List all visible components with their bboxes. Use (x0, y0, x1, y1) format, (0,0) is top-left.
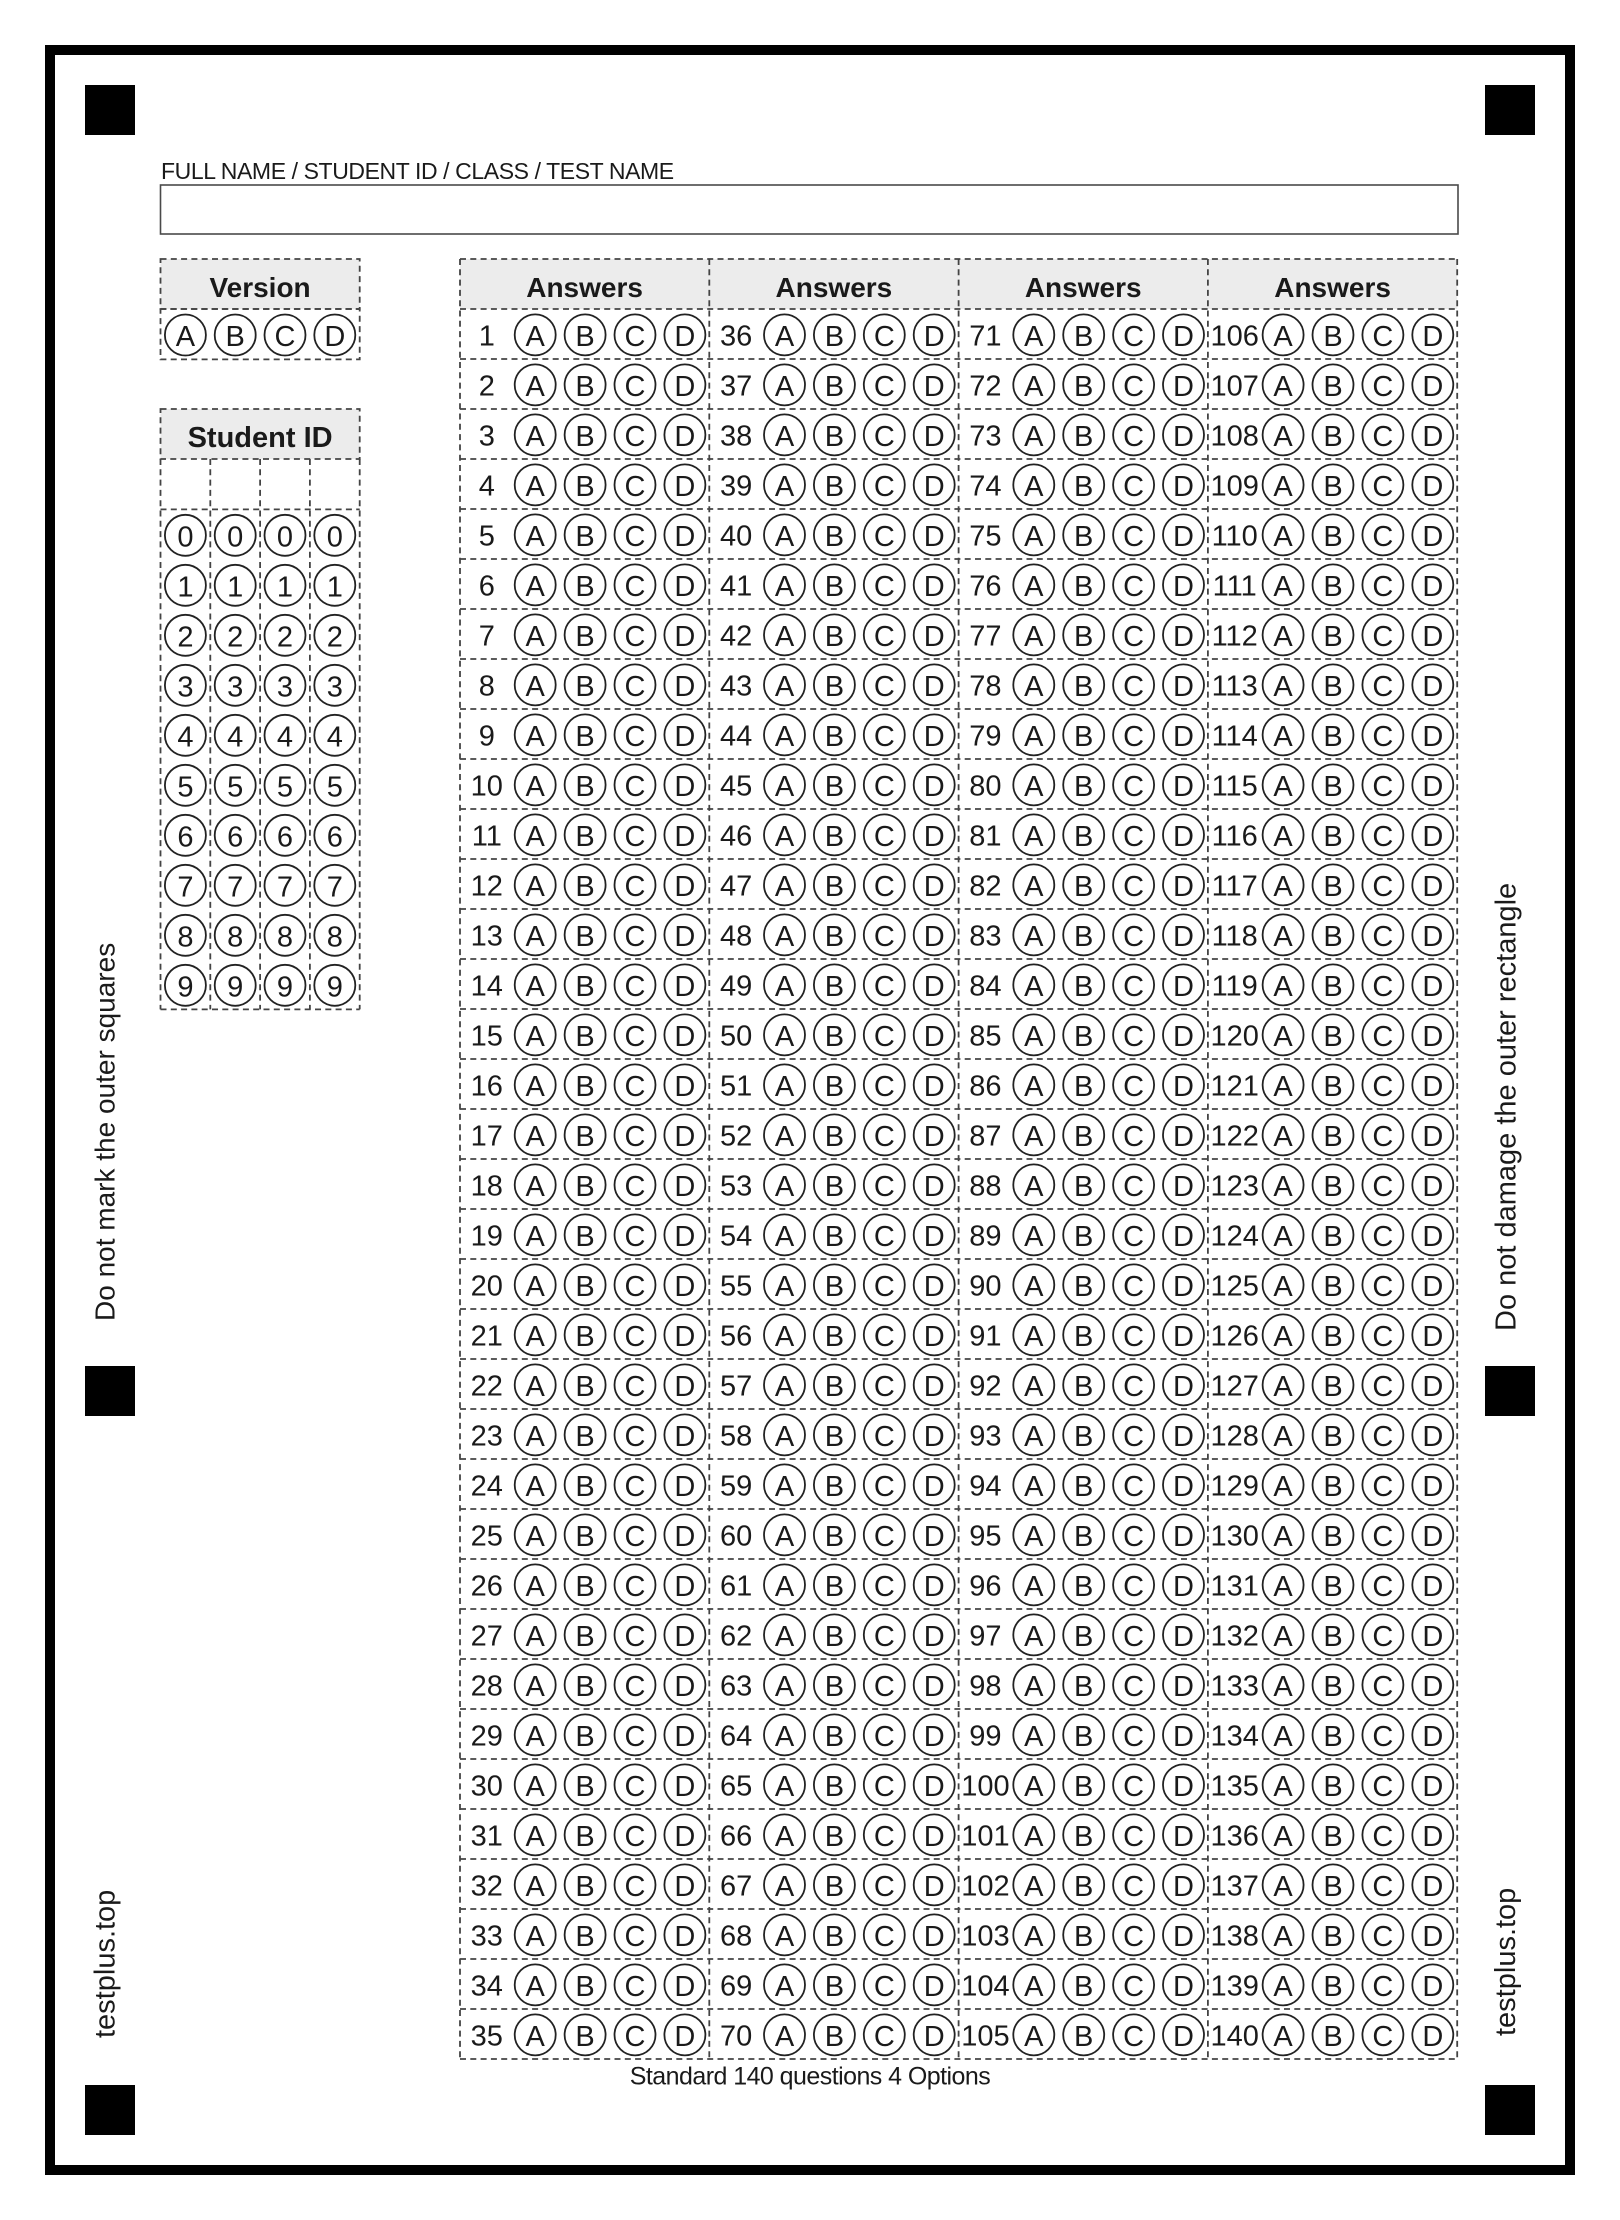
svg-text:C: C (625, 1371, 646, 1403)
svg-text:C: C (874, 1371, 895, 1403)
svg-text:A: A (526, 1621, 546, 1653)
svg-text:123: 123 (1211, 1171, 1259, 1203)
svg-text:A: A (775, 1021, 795, 1053)
svg-text:79: 79 (969, 721, 1001, 753)
svg-text:C: C (874, 1571, 895, 1603)
svg-text:A: A (1273, 1421, 1293, 1453)
svg-text:B: B (575, 1021, 594, 1053)
svg-text:A: A (526, 571, 546, 603)
svg-text:B: B (1074, 1821, 1093, 1853)
svg-text:B: B (825, 2021, 844, 2053)
svg-text:B: B (1323, 771, 1342, 803)
svg-text:A: A (1273, 1971, 1293, 2003)
svg-text:B: B (1323, 321, 1342, 353)
svg-text:D: D (674, 1921, 695, 1953)
svg-text:D: D (924, 1221, 945, 1253)
svg-text:D: D (1173, 371, 1194, 403)
svg-text:A: A (775, 1371, 795, 1403)
svg-text:D: D (1422, 1371, 1443, 1403)
svg-text:A: A (1273, 671, 1293, 703)
svg-text:C: C (1123, 1171, 1144, 1203)
svg-text:D: D (924, 1021, 945, 1053)
svg-text:B: B (825, 771, 844, 803)
svg-text:A: A (1024, 621, 1044, 653)
svg-text:A: A (1273, 2021, 1293, 2053)
svg-text:C: C (874, 421, 895, 453)
svg-text:43: 43 (720, 671, 752, 703)
svg-text:C: C (1123, 1971, 1144, 2003)
svg-text:7: 7 (277, 872, 293, 904)
svg-text:Answers: Answers (1274, 272, 1391, 303)
svg-text:C: C (1372, 1571, 1393, 1603)
svg-text:D: D (1173, 1771, 1194, 1803)
svg-text:4: 4 (277, 722, 293, 754)
svg-text:C: C (1372, 371, 1393, 403)
svg-text:B: B (825, 471, 844, 503)
svg-text:D: D (924, 521, 945, 553)
svg-text:51: 51 (720, 1071, 752, 1103)
svg-text:2: 2 (479, 371, 495, 403)
svg-text:B: B (575, 871, 594, 903)
svg-text:9: 9 (479, 721, 495, 753)
svg-text:B: B (575, 1921, 594, 1953)
svg-text:C: C (1123, 471, 1144, 503)
svg-text:115: 115 (1212, 771, 1258, 803)
svg-text:D: D (1173, 1271, 1194, 1303)
svg-text:A: A (1024, 1721, 1044, 1753)
svg-text:C: C (1372, 721, 1393, 753)
svg-text:B: B (1323, 1321, 1342, 1353)
svg-text:D: D (924, 1821, 945, 1853)
svg-text:A: A (526, 1971, 546, 2003)
svg-text:D: D (674, 571, 695, 603)
svg-text:A: A (1024, 1321, 1044, 1353)
svg-text:B: B (575, 321, 594, 353)
svg-text:A: A (775, 1271, 795, 1303)
svg-text:D: D (1173, 1621, 1194, 1653)
svg-text:A: A (1024, 321, 1044, 353)
svg-text:1: 1 (327, 572, 343, 604)
svg-text:A: A (526, 821, 546, 853)
svg-text:B: B (575, 471, 594, 503)
svg-text:C: C (874, 1821, 895, 1853)
svg-text:135: 135 (1211, 1771, 1259, 1803)
svg-text:A: A (1024, 1271, 1044, 1303)
svg-text:C: C (625, 671, 646, 703)
svg-text:A: A (526, 871, 546, 903)
svg-text:D: D (1173, 521, 1194, 553)
svg-text:D: D (924, 1921, 945, 1953)
svg-text:D: D (1422, 871, 1443, 903)
svg-text:A: A (1273, 1721, 1293, 1753)
svg-text:B: B (1074, 471, 1093, 503)
svg-text:A: A (1024, 1971, 1044, 2003)
svg-text:Do not mark the outer squares: Do not mark the outer squares (90, 943, 121, 1321)
svg-text:B: B (575, 621, 594, 653)
svg-text:C: C (1123, 1121, 1144, 1153)
svg-text:4: 4 (227, 722, 243, 754)
svg-text:C: C (1123, 371, 1144, 403)
svg-text:0: 0 (277, 522, 293, 554)
svg-text:D: D (1173, 871, 1194, 903)
svg-text:C: C (874, 471, 895, 503)
svg-text:A: A (1024, 1421, 1044, 1453)
svg-text:A: A (775, 1971, 795, 2003)
svg-text:C: C (1123, 1921, 1144, 1953)
svg-text:C: C (874, 1871, 895, 1903)
svg-text:B: B (1323, 721, 1342, 753)
svg-text:C: C (625, 821, 646, 853)
svg-text:D: D (1173, 571, 1194, 603)
svg-text:D: D (1173, 1021, 1194, 1053)
svg-text:Answers: Answers (776, 272, 893, 303)
svg-text:A: A (775, 1571, 795, 1603)
svg-text:B: B (575, 1871, 594, 1903)
svg-text:C: C (1372, 1071, 1393, 1103)
svg-text:B: B (575, 721, 594, 753)
svg-text:A: A (526, 671, 546, 703)
svg-text:B: B (1323, 671, 1342, 703)
svg-text:C: C (1123, 971, 1144, 1003)
svg-text:D: D (674, 921, 695, 953)
svg-text:D: D (1173, 1671, 1194, 1703)
svg-text:B: B (1323, 471, 1342, 503)
svg-text:57: 57 (720, 1371, 752, 1403)
svg-text:A: A (775, 921, 795, 953)
svg-text:D: D (1173, 1421, 1194, 1453)
svg-text:D: D (924, 771, 945, 803)
svg-text:29: 29 (471, 1721, 503, 1753)
svg-text:C: C (1123, 1321, 1144, 1353)
svg-text:B: B (1323, 971, 1342, 1003)
svg-text:B: B (1323, 1921, 1342, 1953)
svg-text:B: B (825, 571, 844, 603)
svg-text:A: A (1024, 571, 1044, 603)
svg-text:A: A (775, 371, 795, 403)
svg-text:34: 34 (471, 1971, 503, 2003)
svg-text:A: A (526, 2021, 546, 2053)
svg-text:D: D (1173, 1371, 1194, 1403)
svg-text:B: B (1323, 1471, 1342, 1503)
svg-text:C: C (874, 621, 895, 653)
svg-text:A: A (1273, 1271, 1293, 1303)
svg-text:D: D (924, 1671, 945, 1703)
svg-text:B: B (575, 821, 594, 853)
svg-text:D: D (924, 821, 945, 853)
svg-text:C: C (625, 1521, 646, 1553)
svg-text:B: B (825, 1421, 844, 1453)
svg-text:11: 11 (472, 821, 502, 853)
svg-text:B: B (1323, 1221, 1342, 1253)
svg-text:D: D (674, 2021, 695, 2053)
svg-text:7: 7 (327, 872, 343, 904)
svg-text:A: A (1024, 1071, 1044, 1103)
svg-text:A: A (1024, 1571, 1044, 1603)
svg-text:A: A (526, 1071, 546, 1103)
svg-text:A: A (1273, 1771, 1293, 1803)
svg-text:140: 140 (1211, 2021, 1259, 2053)
svg-text:C: C (625, 1271, 646, 1303)
svg-text:C: C (625, 1221, 646, 1253)
svg-text:C: C (874, 1971, 895, 2003)
svg-text:77: 77 (969, 621, 1001, 653)
svg-text:A: A (1273, 1571, 1293, 1603)
svg-text:D: D (924, 1121, 945, 1153)
svg-text:C: C (1123, 521, 1144, 553)
svg-text:B: B (575, 371, 594, 403)
svg-text:A: A (526, 1321, 546, 1353)
svg-text:D: D (674, 421, 695, 453)
svg-text:D: D (1173, 1921, 1194, 1953)
svg-text:99: 99 (969, 1721, 1001, 1753)
svg-text:C: C (625, 521, 646, 553)
svg-text:A: A (1024, 1821, 1044, 1853)
svg-text:108: 108 (1211, 421, 1259, 453)
svg-text:C: C (1372, 821, 1393, 853)
svg-text:C: C (1123, 1221, 1144, 1253)
svg-text:A: A (1024, 1171, 1044, 1203)
svg-text:D: D (674, 1021, 695, 1053)
svg-text:B: B (575, 1721, 594, 1753)
svg-text:B: B (1074, 1771, 1093, 1803)
svg-text:C: C (625, 1971, 646, 2003)
svg-text:A: A (526, 1171, 546, 1203)
svg-text:B: B (575, 971, 594, 1003)
svg-text:125: 125 (1211, 1271, 1259, 1303)
svg-text:FULL NAME / STUDENT ID / CLASS: FULL NAME / STUDENT ID / CLASS / TEST NA… (161, 158, 674, 184)
svg-text:1: 1 (227, 572, 243, 604)
svg-text:A: A (1024, 1021, 1044, 1053)
svg-text:C: C (1123, 621, 1144, 653)
svg-text:D: D (1173, 821, 1194, 853)
svg-text:121: 121 (1211, 1071, 1259, 1103)
svg-text:C: C (874, 1271, 895, 1303)
svg-text:B: B (1074, 1871, 1093, 1903)
svg-text:A: A (1024, 521, 1044, 553)
svg-text:D: D (1422, 1521, 1443, 1553)
svg-text:6: 6 (177, 822, 193, 854)
svg-text:C: C (1123, 1621, 1144, 1653)
svg-text:C: C (1123, 1721, 1144, 1753)
svg-text:B: B (1074, 1371, 1093, 1403)
svg-text:6: 6 (227, 822, 243, 854)
svg-text:24: 24 (471, 1471, 503, 1503)
svg-text:133: 133 (1211, 1671, 1259, 1703)
svg-text:Standard 140 questions 4 Optio: Standard 140 questions 4 Options (630, 2063, 990, 2091)
svg-text:109: 109 (1211, 471, 1259, 503)
svg-text:A: A (775, 471, 795, 503)
svg-text:19: 19 (471, 1221, 503, 1253)
svg-text:131: 131 (1211, 1571, 1259, 1603)
svg-text:C: C (625, 1871, 646, 1903)
svg-text:A: A (1273, 721, 1293, 753)
svg-text:C: C (625, 1821, 646, 1853)
svg-text:C: C (1123, 571, 1144, 603)
svg-text:A: A (1024, 1471, 1044, 1503)
svg-text:A: A (1024, 1121, 1044, 1153)
svg-text:B: B (1074, 1071, 1093, 1103)
svg-text:A: A (526, 1271, 546, 1303)
svg-text:A: A (1273, 1921, 1293, 1953)
svg-text:A: A (1024, 371, 1044, 403)
svg-text:D: D (674, 871, 695, 903)
svg-text:C: C (1372, 571, 1393, 603)
svg-text:D: D (924, 971, 945, 1003)
svg-text:7: 7 (227, 872, 243, 904)
svg-text:B: B (575, 1121, 594, 1153)
svg-text:A: A (775, 1171, 795, 1203)
svg-text:B: B (825, 1021, 844, 1053)
svg-text:D: D (1422, 321, 1443, 353)
svg-text:C: C (1372, 871, 1393, 903)
svg-text:A: A (1024, 1771, 1044, 1803)
svg-text:D: D (1422, 1321, 1443, 1353)
svg-text:A: A (1273, 521, 1293, 553)
svg-text:32: 32 (471, 1871, 503, 1903)
svg-text:B: B (575, 1171, 594, 1203)
svg-text:B: B (1074, 1571, 1093, 1603)
svg-text:A: A (1273, 1021, 1293, 1053)
svg-text:59: 59 (720, 1471, 752, 1503)
svg-text:A: A (1024, 721, 1044, 753)
svg-text:A: A (1024, 1621, 1044, 1653)
svg-text:C: C (874, 371, 895, 403)
svg-text:B: B (1074, 871, 1093, 903)
svg-text:A: A (775, 1721, 795, 1753)
svg-text:C: C (625, 421, 646, 453)
svg-text:D: D (1422, 821, 1443, 853)
svg-text:D: D (674, 1821, 695, 1853)
svg-text:A: A (1273, 421, 1293, 453)
svg-text:C: C (874, 1671, 895, 1703)
svg-text:B: B (1323, 1071, 1342, 1103)
svg-text:C: C (1372, 2021, 1393, 2053)
svg-text:A: A (526, 1871, 546, 1903)
svg-text:A: A (775, 1771, 795, 1803)
svg-text:B: B (825, 1321, 844, 1353)
svg-text:90: 90 (969, 1271, 1001, 1303)
svg-text:D: D (1422, 1421, 1443, 1453)
svg-text:D: D (1422, 1221, 1443, 1253)
svg-text:A: A (526, 421, 546, 453)
svg-text:10: 10 (471, 771, 503, 803)
svg-text:C: C (874, 821, 895, 853)
svg-text:78: 78 (969, 671, 1001, 703)
svg-text:C: C (1372, 1171, 1393, 1203)
svg-text:81: 81 (969, 821, 1001, 853)
svg-text:C: C (1372, 921, 1393, 953)
svg-text:A: A (775, 571, 795, 603)
svg-text:A: A (775, 1221, 795, 1253)
svg-text:C: C (625, 321, 646, 353)
svg-text:A: A (176, 321, 196, 353)
svg-text:B: B (575, 1371, 594, 1403)
svg-text:A: A (775, 871, 795, 903)
svg-text:82: 82 (969, 871, 1001, 903)
svg-text:D: D (1422, 1021, 1443, 1053)
svg-text:B: B (825, 1271, 844, 1303)
svg-text:B: B (1323, 1521, 1342, 1553)
svg-text:54: 54 (720, 1221, 752, 1253)
svg-text:C: C (625, 1121, 646, 1153)
svg-text:73: 73 (969, 421, 1001, 453)
svg-text:B: B (825, 371, 844, 403)
svg-text:D: D (1422, 1121, 1443, 1153)
svg-text:D: D (1173, 1221, 1194, 1253)
svg-text:A: A (775, 1321, 795, 1353)
svg-text:B: B (825, 1871, 844, 1903)
svg-text:B: B (575, 1421, 594, 1453)
svg-text:D: D (1422, 721, 1443, 753)
svg-text:D: D (924, 1321, 945, 1353)
svg-text:B: B (1323, 1821, 1342, 1853)
svg-text:B: B (825, 1171, 844, 1203)
svg-text:B: B (575, 1971, 594, 2003)
svg-text:56: 56 (720, 1321, 752, 1353)
svg-text:C: C (625, 771, 646, 803)
svg-text:B: B (1074, 2021, 1093, 2053)
svg-text:A: A (526, 1921, 546, 1953)
svg-text:B: B (575, 1821, 594, 1853)
svg-text:C: C (625, 971, 646, 1003)
svg-text:D: D (1173, 1471, 1194, 1503)
svg-text:102: 102 (961, 1871, 1009, 1903)
svg-text:7: 7 (177, 872, 193, 904)
svg-text:63: 63 (720, 1671, 752, 1703)
svg-text:27: 27 (471, 1621, 503, 1653)
svg-text:D: D (674, 1621, 695, 1653)
svg-text:B: B (825, 1821, 844, 1853)
svg-text:D: D (1173, 471, 1194, 503)
svg-text:A: A (526, 921, 546, 953)
svg-text:B: B (825, 521, 844, 553)
svg-text:D: D (1422, 971, 1443, 1003)
svg-text:B: B (575, 1321, 594, 1353)
svg-text:55: 55 (720, 1271, 752, 1303)
svg-text:C: C (1123, 1371, 1144, 1403)
svg-text:C: C (275, 321, 296, 353)
svg-text:134: 134 (1211, 1721, 1259, 1753)
svg-text:C: C (1123, 1871, 1144, 1903)
svg-text:B: B (1323, 2021, 1342, 2053)
svg-text:3: 3 (327, 672, 343, 704)
svg-text:A: A (775, 1421, 795, 1453)
svg-text:C: C (625, 471, 646, 503)
svg-text:22: 22 (471, 1371, 503, 1403)
svg-text:137: 137 (1211, 1871, 1259, 1903)
svg-text:B: B (575, 1671, 594, 1703)
svg-text:D: D (1173, 1321, 1194, 1353)
svg-text:2: 2 (277, 622, 293, 654)
svg-text:A: A (1273, 371, 1293, 403)
svg-text:86: 86 (969, 1071, 1001, 1103)
svg-text:B: B (1074, 1971, 1093, 2003)
svg-text:8: 8 (327, 922, 343, 954)
svg-text:89: 89 (969, 1221, 1001, 1253)
svg-text:C: C (1372, 1471, 1393, 1503)
svg-text:D: D (1422, 1071, 1443, 1103)
svg-text:D: D (924, 471, 945, 503)
svg-text:B: B (575, 521, 594, 553)
svg-text:A: A (775, 821, 795, 853)
svg-text:6: 6 (277, 822, 293, 854)
svg-text:A: A (526, 1771, 546, 1803)
svg-text:A: A (775, 1921, 795, 1953)
svg-text:C: C (874, 671, 895, 703)
svg-text:C: C (1372, 971, 1393, 1003)
svg-text:C: C (1123, 1421, 1144, 1453)
svg-text:B: B (575, 1771, 594, 1803)
